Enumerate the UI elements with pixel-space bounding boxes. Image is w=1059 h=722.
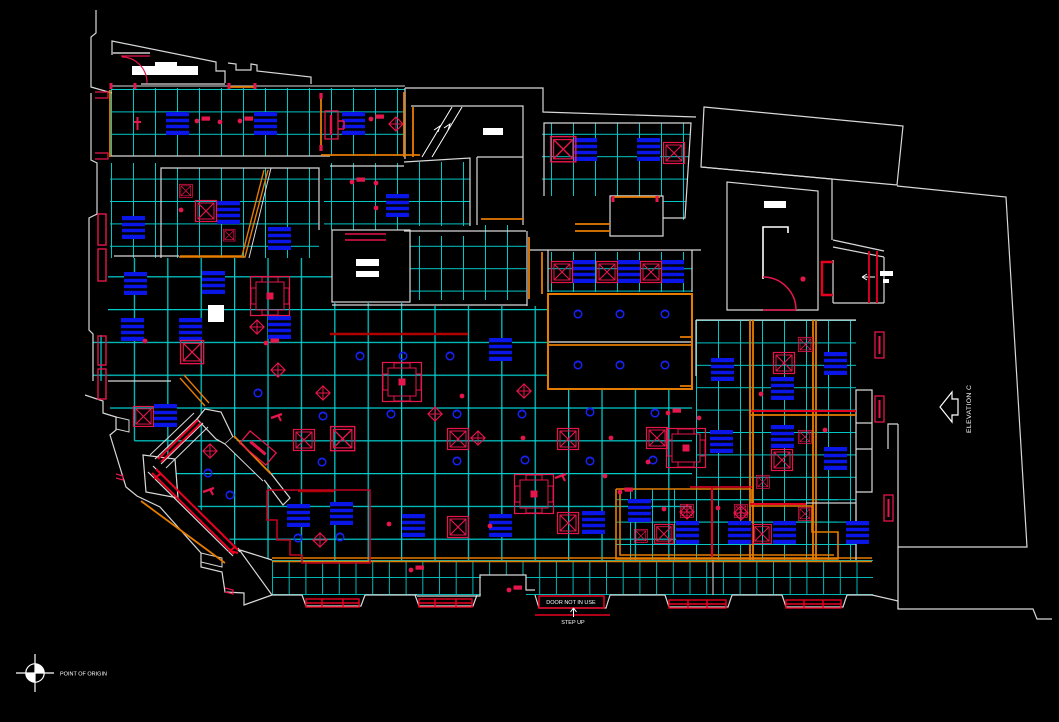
svg-text:STEP UP: STEP UP [561,620,585,626]
svg-text:POINT OF ORIGIN: POINT OF ORIGIN [60,672,107,678]
svg-text:DOOR NOT IN USE: DOOR NOT IN USE [546,600,596,606]
svg-text:ELEVATION C: ELEVATION C [966,385,973,433]
